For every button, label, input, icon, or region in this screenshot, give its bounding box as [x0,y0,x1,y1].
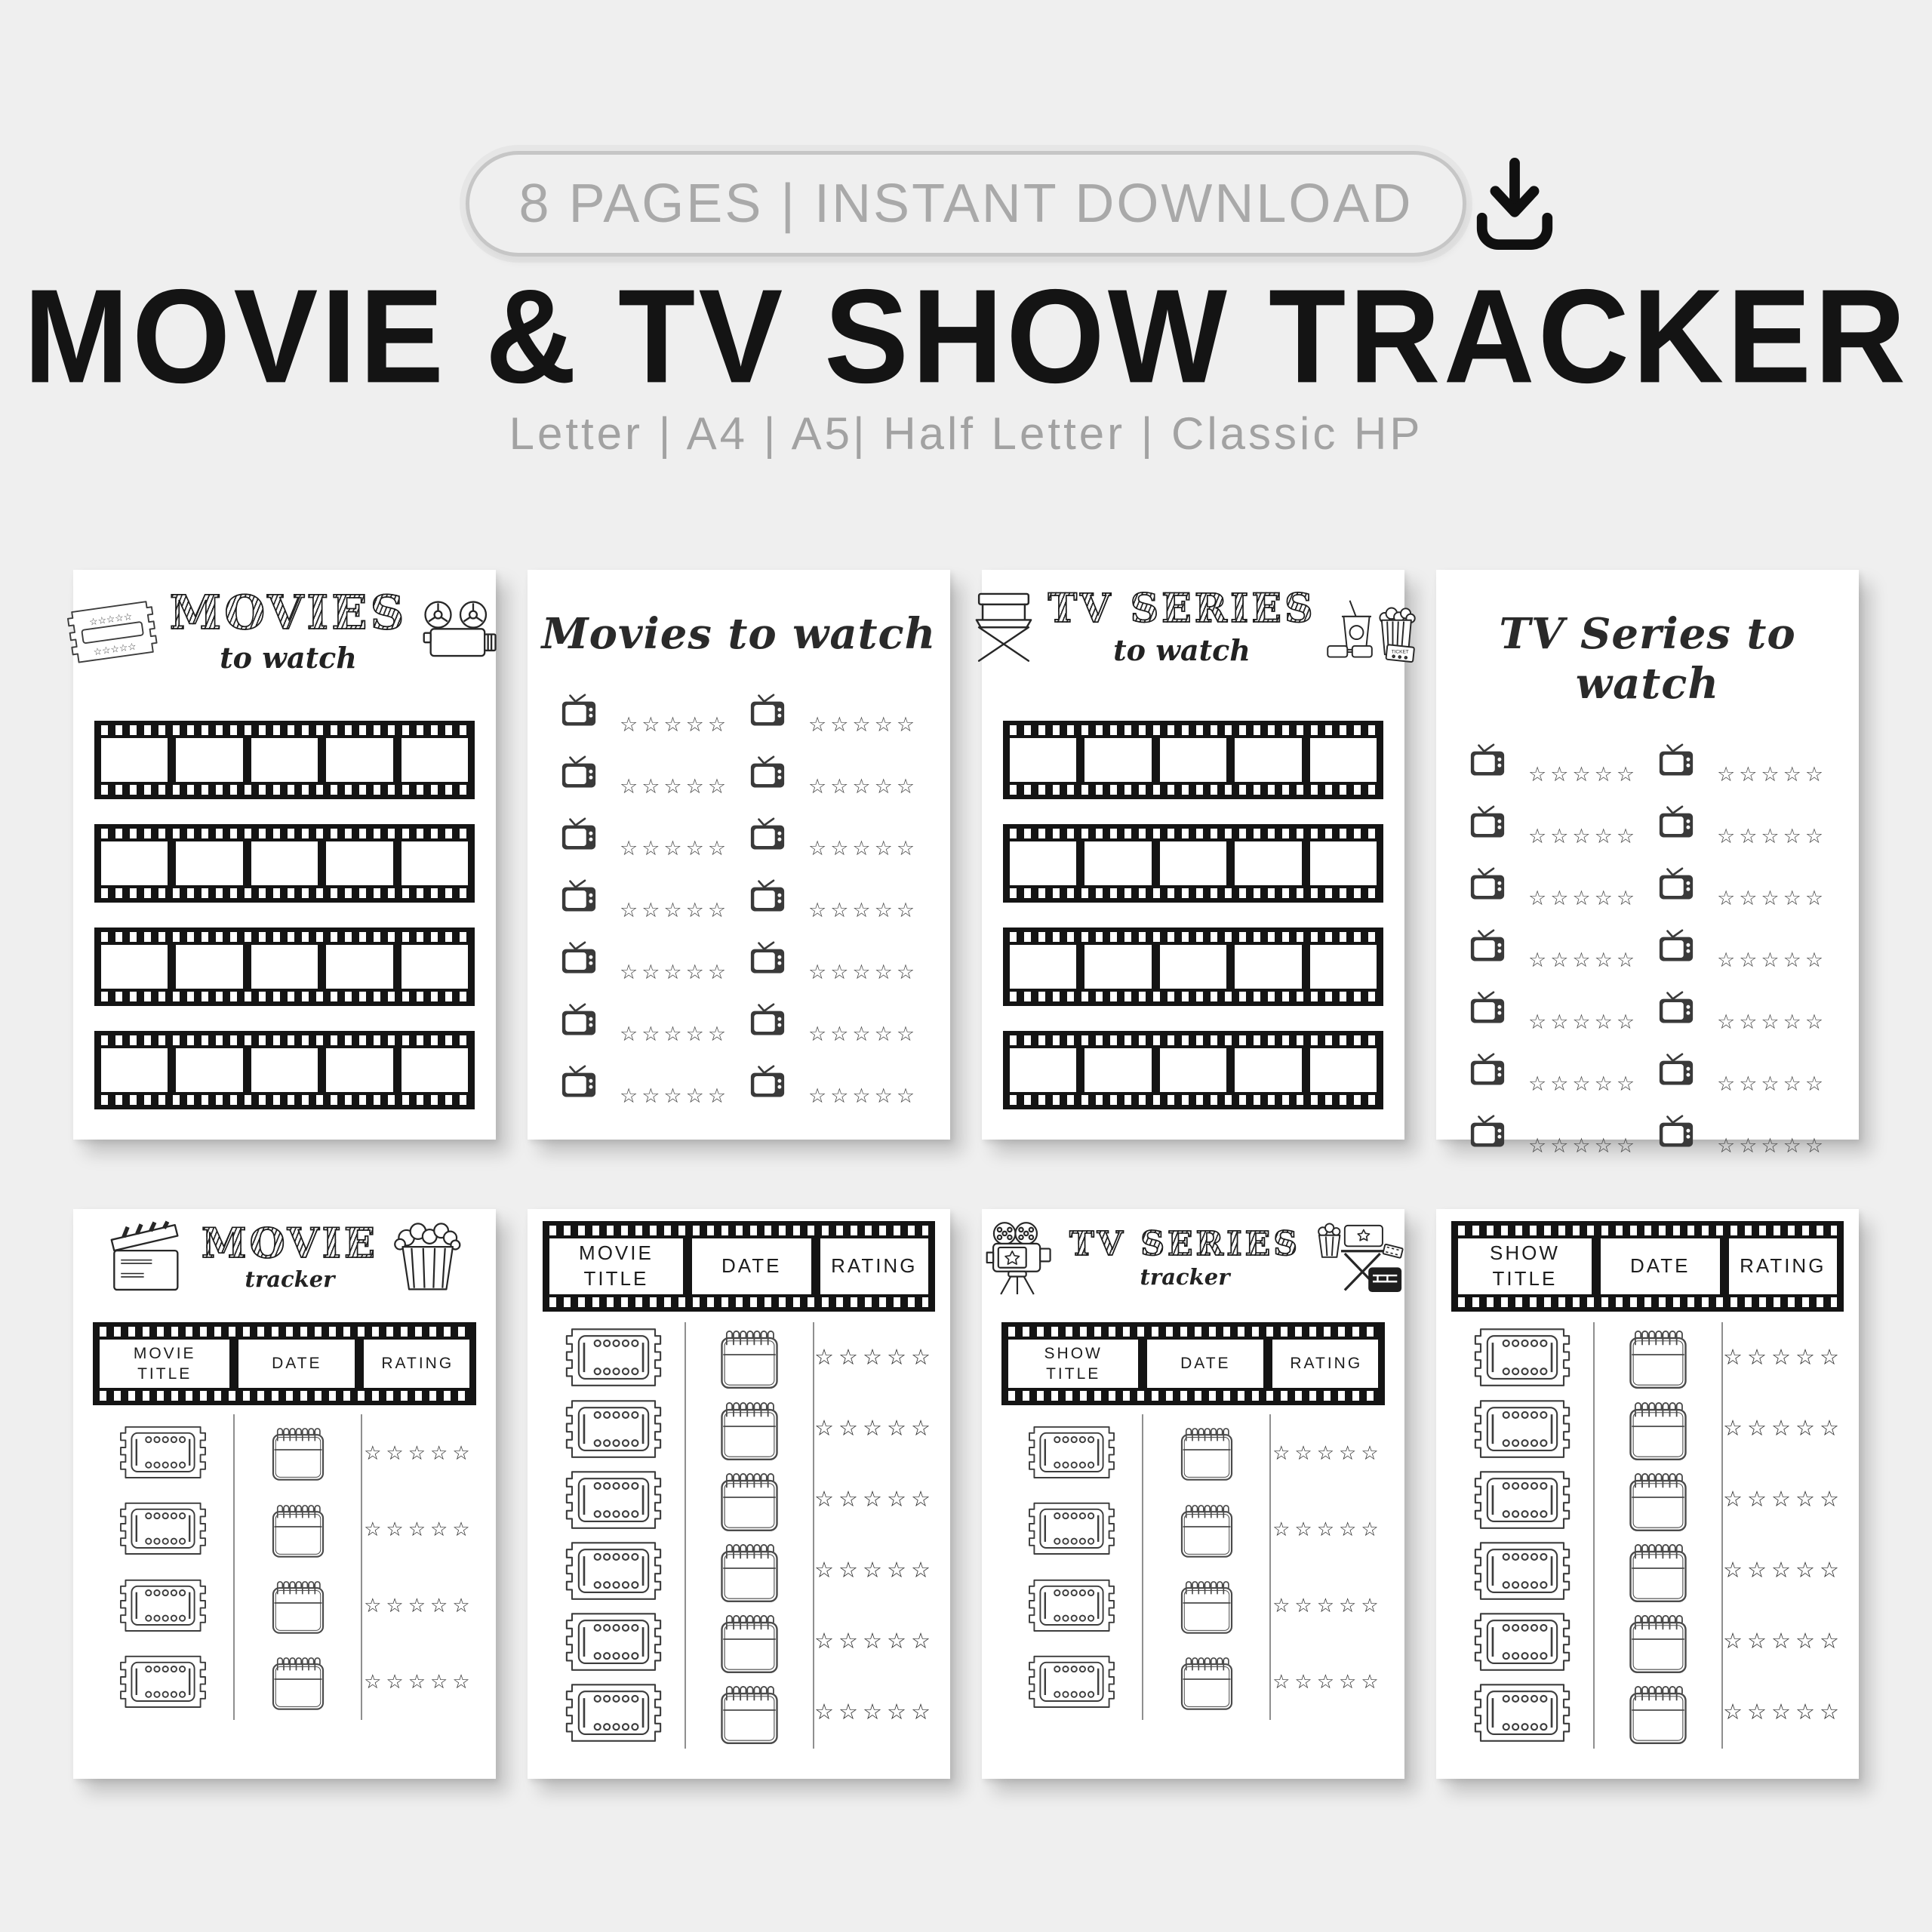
page-header: TV SERIES tracker [982,1209,1404,1298]
calendar-icon [718,1537,781,1605]
product-listing-image: 8 PAGES | INSTANT DOWNLOAD MOVIE & TV SH… [0,0,1932,1932]
ticket-icon [1023,1423,1120,1481]
watch-entry: ☆☆☆☆☆ [1459,805,1647,840]
sprocket-row [1458,1226,1837,1235]
page-header: ☆☆☆☆☆ ☆☆☆☆☆ MOVIES to watch [73,570,496,675]
rating-stars: ☆☆☆☆☆ [814,1560,935,1582]
column-header-date: DATE [692,1238,811,1294]
ticket-icon [115,1653,211,1711]
ticket-icon [1023,1653,1120,1711]
tracker-table: ☆☆☆☆☆☆☆☆☆☆☆☆☆☆☆☆☆☆☆☆☆☆☆☆☆☆☆☆☆☆ [1451,1322,1844,1749]
tv-icon [1466,929,1509,964]
page-tv-series-tracker-table: SHOW TITLE DATE RATING [1436,1209,1859,1779]
calendar-icon [1626,1323,1690,1392]
watch-entry: ☆☆☆☆☆ [739,879,928,914]
film-frame [1084,738,1151,782]
page-title: MOVIE [202,1223,378,1263]
film-strips [1003,721,1383,1109]
ticket-icon [560,1539,667,1603]
page-tv-series-tracker: TV SERIES tracker [982,1209,1404,1779]
page-tv-series-to-watch-list: TV Series to watch ☆☆☆☆☆ [1436,570,1859,1140]
column-header-rating: RATING [364,1340,469,1388]
ticket-icon [115,1423,211,1481]
calendar-icon [718,1678,781,1747]
film-frame [101,841,168,885]
rating-stars: ☆☆☆☆☆ [1528,950,1638,971]
page-script-subtitle: to watch [1113,633,1251,667]
film-frame [101,738,168,782]
calendar-icon [718,1323,781,1392]
page-script-subtitle: tracker [1140,1264,1230,1290]
rating-stars: ☆☆☆☆☆ [1528,888,1638,909]
rating-stars: ☆☆☆☆☆ [1528,1074,1638,1094]
table-header-filmstrip: SHOW TITLE DATE RATING [1001,1322,1385,1405]
rating-stars: ☆☆☆☆☆ [1717,950,1827,971]
tv-icon [746,879,789,914]
tv-icon [558,694,600,728]
ticket-icon [1469,1468,1576,1532]
ticket-icon [115,1653,211,1711]
rating-stars: ☆☆☆☆☆ [620,900,730,921]
rating-stars: ☆☆☆☆☆ [620,777,730,797]
column-header-title: MOVIE TITLE [100,1340,229,1388]
rating-stars: ☆☆☆☆☆ [364,1443,475,1463]
watch-entry: ☆☆☆☆☆ [550,755,739,790]
tv-icon [1655,743,1697,778]
ticket-icon [560,1539,667,1603]
ticket-icon [1023,1423,1120,1481]
sprocket-row [1008,1391,1378,1401]
watch-entry: ☆☆☆☆☆ [1459,1053,1647,1088]
page-title: TV SERIES [1048,589,1315,629]
tv-icon [1466,867,1509,902]
watch-entry: ☆☆☆☆☆ [739,755,928,790]
tv-icon [558,1003,600,1038]
ticket-icon [560,1681,667,1745]
rating-stars: ☆☆☆☆☆ [814,1489,935,1511]
rating-stars: ☆☆☆☆☆ [1723,1702,1844,1724]
ticket-icon [560,1681,667,1745]
page-movies-to-watch-list: Movies to watch ☆☆☆☆☆ [528,570,950,1140]
ticket-icon [1469,1325,1576,1389]
popcorn-icon [387,1221,466,1293]
rating-stars: ☆☆☆☆☆ [364,1519,475,1539]
film-strip [94,824,475,903]
film-strip [1003,824,1383,903]
calendar-icon [269,1574,327,1637]
page-script-subtitle: to watch [220,641,357,675]
rating-stars: ☆☆☆☆☆ [1723,1347,1844,1369]
calendar-icon [1178,1498,1235,1561]
sprocket-row [101,932,468,942]
rating-stars: ☆☆☆☆☆ [814,1347,935,1369]
rating-stars: ☆☆☆☆☆ [620,1086,730,1106]
sprocket-row [1008,1327,1378,1337]
film-frame [176,841,242,885]
watch-entry: ☆☆☆☆☆ [1459,743,1647,778]
calendar-icon [1178,1421,1235,1484]
ticket-icon [1469,1681,1576,1745]
calendar-icon [1178,1421,1235,1484]
tv-icon [746,694,789,728]
calendar-icon [718,1395,781,1463]
film-frame [1010,738,1076,782]
rating-stars: ☆☆☆☆☆ [1717,888,1827,909]
film-strip [1003,928,1383,1006]
sprocket-row [1010,1095,1377,1105]
rating-stars: ☆☆☆☆☆ [620,962,730,983]
badge-row: 8 PAGES | INSTANT DOWNLOAD [0,151,1932,257]
rating-stars: ☆☆☆☆☆ [364,1595,475,1615]
sprocket-row [549,1226,928,1235]
watch-entry: ☆☆☆☆☆ [550,1065,739,1100]
film-frame [1310,841,1377,885]
page-header: TV SERIES to watch [982,570,1404,667]
film-frame [251,945,318,989]
film-frame [326,841,392,885]
ticket-icon [1023,1500,1120,1558]
page-script-subtitle: tracker [245,1266,335,1292]
calendar-icon [1626,1607,1690,1676]
rating-stars: ☆☆☆☆☆ [808,962,918,983]
rating-stars: ☆☆☆☆☆ [620,715,730,735]
product-subtitle: Letter | A4 | A5| Half Letter | Classic … [0,408,1932,460]
director-chair-icon [969,590,1038,666]
film-frame [1084,945,1151,989]
rating-stars: ☆☆☆☆☆ [1723,1418,1844,1440]
film-frame [1235,738,1301,782]
film-camera-icon [982,1220,1060,1298]
tv-icon [746,1003,789,1038]
calendar-icon [1178,1574,1235,1637]
tv-icon [1655,1115,1697,1149]
column-header-rating: RATING [1272,1340,1378,1388]
tv-icon [1655,929,1697,964]
calendar-icon [1626,1466,1690,1534]
ticket-icon [1023,1577,1120,1635]
column-header-date: DATE [238,1340,355,1388]
cinema-props-icon [1309,1222,1404,1297]
film-frame [1235,841,1301,885]
sprocket-row [101,785,468,795]
film-frame [1310,738,1377,782]
rating-stars: ☆☆☆☆☆ [814,1702,935,1724]
rating-stars: ☆☆☆☆☆ [1723,1560,1844,1582]
ticket-icon [560,1610,667,1674]
calendar-icon [718,1323,781,1392]
ticket-icon [560,1468,667,1532]
pages-download-badge: 8 PAGES | INSTANT DOWNLOAD [466,151,1467,257]
tv-icon [1655,1053,1697,1088]
sprocket-row [1010,829,1377,838]
tv-icon [746,817,789,852]
watch-list: ☆☆☆☆☆ ☆☆☆☆☆ [528,694,950,1100]
watch-entry: ☆☆☆☆☆ [1647,805,1836,840]
svg-text:TICKET: TICKET [1391,649,1408,654]
calendar-icon [1626,1395,1690,1463]
calendar-icon [1178,1498,1235,1561]
film-frame [401,945,468,989]
movie-projector-icon [416,599,505,666]
film-frame [251,738,318,782]
ticket-icon [1469,1325,1576,1389]
sprocket-row [101,1095,468,1105]
film-frame [1235,1048,1301,1092]
film-frame [101,945,168,989]
film-frame [1310,1048,1377,1092]
rating-stars: ☆☆☆☆☆ [1717,1012,1827,1032]
film-frame [101,1048,168,1092]
film-frame [1160,1048,1226,1092]
watch-entry: ☆☆☆☆☆ [1647,991,1836,1026]
film-frame [176,738,242,782]
table-header-filmstrip: SHOW TITLE DATE RATING [1451,1221,1844,1312]
sprocket-row [1010,888,1377,898]
snacks-icon: TICKET [1325,593,1417,664]
rating-stars: ☆☆☆☆☆ [1723,1489,1844,1511]
ticket-icon [560,1397,667,1461]
watch-entry: ☆☆☆☆☆ [739,1003,928,1038]
calendar-icon [718,1466,781,1534]
sprocket-row [1010,1035,1377,1045]
calendar-icon [1178,1574,1235,1637]
film-frame [1160,841,1226,885]
page-movies-to-watch-filmstrip: ☆☆☆☆☆ ☆☆☆☆☆ MOVIES to watch [73,570,496,1140]
calendar-icon [269,1498,327,1561]
sprocket-row [101,992,468,1001]
film-strip [94,721,475,799]
ticket-icon [1469,1397,1576,1461]
calendar-icon [718,1537,781,1605]
rating-stars: ☆☆☆☆☆ [808,715,918,735]
ticket-icon [115,1577,211,1635]
film-frame [1160,738,1226,782]
film-frame [326,1048,392,1092]
film-strip [94,1031,475,1109]
film-frame [1010,841,1076,885]
watch-entry: ☆☆☆☆☆ [739,694,928,728]
calendar-icon [269,1421,327,1484]
watch-entry: ☆☆☆☆☆ [1459,991,1647,1026]
page-title: TV Series to watch [1436,609,1859,709]
clapperboard-icon [103,1220,192,1295]
rating-stars: ☆☆☆☆☆ [1272,1595,1383,1615]
sprocket-row [101,725,468,735]
rating-stars: ☆☆☆☆☆ [1717,1136,1827,1156]
tv-icon [1655,867,1697,902]
ticket-icon [115,1423,211,1481]
rating-stars: ☆☆☆☆☆ [620,838,730,859]
product-title: MOVIE & TV SHOW TRACKER [0,269,1932,405]
film-frame [326,738,392,782]
calendar-icon [718,1607,781,1676]
calendar-icon [718,1466,781,1534]
calendar-icon [718,1395,781,1463]
calendar-icon [269,1421,327,1484]
film-strip [94,928,475,1006]
rating-stars: ☆☆☆☆☆ [1272,1519,1383,1539]
film-frame [1235,945,1301,989]
film-frame [1310,945,1377,989]
ticket-icon [560,1325,667,1389]
sprocket-row [1010,992,1377,1001]
film-frame [1084,841,1151,885]
calendar-icon [1626,1678,1690,1747]
page-header: MOVIE tracker [73,1209,496,1295]
ticket-icon [1023,1653,1120,1711]
calendar-icon [1178,1651,1235,1713]
tv-icon [746,1065,789,1100]
calendar-icon [269,1651,327,1713]
tv-icon [1655,991,1697,1026]
watch-list: ☆☆☆☆☆ ☆☆☆☆☆ [1436,743,1859,1149]
film-strip [1003,721,1383,799]
ticket-icon [560,1325,667,1389]
tv-icon [1466,805,1509,840]
film-strips [94,721,475,1109]
tracker-table: ☆☆☆☆☆☆☆☆☆☆☆☆☆☆☆☆☆☆☆☆ [1001,1414,1385,1720]
film-frame [1160,945,1226,989]
rating-stars: ☆☆☆☆☆ [1528,1136,1638,1156]
film-strip [1003,1031,1383,1109]
watch-entry: ☆☆☆☆☆ [1459,1115,1647,1149]
rating-stars: ☆☆☆☆☆ [1272,1443,1383,1463]
calendar-icon [1626,1678,1690,1747]
watch-entry: ☆☆☆☆☆ [1459,867,1647,902]
tv-icon [746,755,789,790]
rating-stars: ☆☆☆☆☆ [1528,764,1638,785]
calendar-icon [1626,1537,1690,1605]
page-tv-series-to-watch-filmstrip: TV SERIES to watch [982,570,1404,1140]
tv-icon [1466,1053,1509,1088]
watch-entry: ☆☆☆☆☆ [550,1003,739,1038]
ticket-icon: ☆☆☆☆☆ ☆☆☆☆☆ [60,597,164,668]
tv-icon [558,879,600,914]
calendar-icon [718,1678,781,1747]
rating-stars: ☆☆☆☆☆ [808,1024,918,1044]
ticket-icon [115,1500,211,1558]
tv-icon [1466,743,1509,778]
rating-stars: ☆☆☆☆☆ [1528,826,1638,847]
calendar-icon [1626,1607,1690,1676]
page-title: MOVIES [170,589,408,636]
film-frame [401,841,468,885]
rating-stars: ☆☆☆☆☆ [620,1024,730,1044]
table-header-filmstrip: MOVIE TITLE DATE RATING [93,1322,476,1405]
tv-icon [1466,991,1509,1026]
calendar-icon [1178,1651,1235,1713]
ticket-icon [1469,1610,1576,1674]
calendar-icon [1626,1323,1690,1392]
film-frame [176,1048,242,1092]
tv-icon [558,817,600,852]
sprocket-row [1010,725,1377,735]
rating-stars: ☆☆☆☆☆ [1717,764,1827,785]
tracker-table: ☆☆☆☆☆☆☆☆☆☆☆☆☆☆☆☆☆☆☆☆☆☆☆☆☆☆☆☆☆☆ [543,1322,935,1749]
rating-stars: ☆☆☆☆☆ [808,838,918,859]
sprocket-row [100,1327,469,1337]
watch-entry: ☆☆☆☆☆ [739,1065,928,1100]
film-frame [401,738,468,782]
rating-stars: ☆☆☆☆☆ [1272,1672,1383,1691]
film-frame [326,945,392,989]
rating-stars: ☆☆☆☆☆ [814,1631,935,1653]
rating-stars: ☆☆☆☆☆ [1717,826,1827,847]
film-frame [251,1048,318,1092]
column-header-date: DATE [1601,1238,1720,1294]
sprocket-row [1010,932,1377,942]
rating-stars: ☆☆☆☆☆ [364,1672,475,1691]
ticket-icon [115,1577,211,1635]
watch-entry: ☆☆☆☆☆ [1647,867,1836,902]
watch-entry: ☆☆☆☆☆ [1647,929,1836,964]
rating-stars: ☆☆☆☆☆ [808,900,918,921]
page-title: Movies to watch [528,609,950,659]
tv-icon [558,755,600,790]
film-frame [176,945,242,989]
tv-icon [1655,805,1697,840]
watch-entry: ☆☆☆☆☆ [1647,1115,1836,1149]
column-header-title: SHOW TITLE [1008,1340,1138,1388]
calendar-icon [269,1574,327,1637]
page-thumbnails: ☆☆☆☆☆ ☆☆☆☆☆ MOVIES to watch [73,570,1859,1779]
rating-stars: ☆☆☆☆☆ [808,777,918,797]
table-header-filmstrip: MOVIE TITLE DATE RATING [543,1221,935,1312]
watch-entry: ☆☆☆☆☆ [1459,929,1647,964]
ticket-icon [1469,1539,1576,1603]
ticket-icon [1023,1577,1120,1635]
watch-entry: ☆☆☆☆☆ [1647,1053,1836,1088]
rating-stars: ☆☆☆☆☆ [1723,1631,1844,1653]
ticket-icon [560,1397,667,1461]
rating-stars: ☆☆☆☆☆ [808,1086,918,1106]
sprocket-row [549,1297,928,1307]
film-frame [251,841,318,885]
rating-stars: ☆☆☆☆☆ [1717,1074,1827,1094]
watch-entry: ☆☆☆☆☆ [550,941,739,976]
tv-icon [746,941,789,976]
ticket-icon [1469,1539,1576,1603]
page-title: TV SERIES [1069,1228,1300,1261]
sprocket-row [101,888,468,898]
ticket-icon [1023,1500,1120,1558]
column-header-date: DATE [1147,1340,1263,1388]
ticket-icon [560,1610,667,1674]
calendar-icon [718,1607,781,1676]
ticket-icon [1469,1468,1576,1532]
column-header-title: MOVIE TITLE [549,1238,683,1294]
page-movie-tracker: MOVIE tracker [73,1209,496,1779]
sprocket-row [100,1391,469,1401]
watch-entry: ☆☆☆☆☆ [550,817,739,852]
film-frame [401,1048,468,1092]
ticket-icon [115,1500,211,1558]
calendar-icon [1626,1466,1690,1534]
rating-stars: ☆☆☆☆☆ [1528,1012,1638,1032]
tracker-table: ☆☆☆☆☆☆☆☆☆☆☆☆☆☆☆☆☆☆☆☆ [93,1414,476,1720]
tv-icon [1466,1115,1509,1149]
ticket-icon [560,1468,667,1532]
film-frame [1084,1048,1151,1092]
sprocket-row [101,1035,468,1045]
rating-stars: ☆☆☆☆☆ [814,1418,935,1440]
ticket-icon [1469,1681,1576,1745]
film-frame [1010,945,1076,989]
tv-icon [558,941,600,976]
film-frame [1010,1048,1076,1092]
calendar-icon [269,1651,327,1713]
tv-icon [558,1065,600,1100]
